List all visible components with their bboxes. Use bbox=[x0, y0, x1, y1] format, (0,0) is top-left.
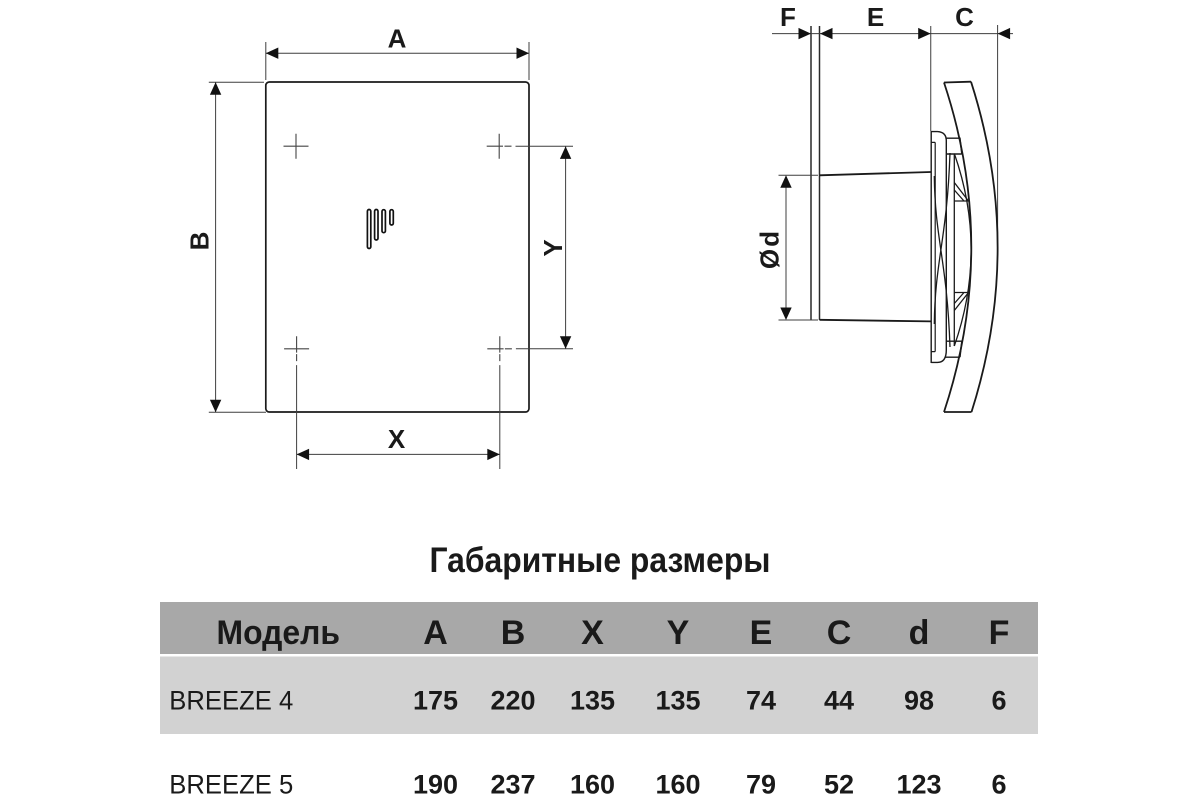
svg-text:74: 74 bbox=[746, 685, 776, 715]
svg-text:A: A bbox=[388, 24, 407, 54]
svg-text:A: A bbox=[423, 614, 448, 652]
svg-text:98: 98 bbox=[904, 685, 934, 715]
svg-text:F: F bbox=[780, 2, 796, 32]
svg-text:52: 52 bbox=[824, 769, 854, 799]
svg-text:B: B bbox=[185, 232, 215, 251]
svg-text:E: E bbox=[867, 2, 884, 32]
svg-text:E: E bbox=[750, 614, 773, 652]
svg-text:190: 190 bbox=[413, 769, 458, 799]
svg-text:C: C bbox=[955, 2, 974, 32]
svg-text:6: 6 bbox=[991, 685, 1006, 715]
svg-text:Y: Y bbox=[667, 614, 690, 652]
svg-text:X: X bbox=[388, 424, 406, 454]
svg-text:BREEZE 4: BREEZE 4 bbox=[169, 685, 293, 715]
svg-text:175: 175 bbox=[413, 685, 458, 715]
svg-text:160: 160 bbox=[655, 769, 700, 799]
svg-text:d: d bbox=[909, 614, 930, 652]
svg-text:6: 6 bbox=[991, 769, 1006, 799]
svg-text:220: 220 bbox=[490, 685, 535, 715]
svg-text:BREEZE 5: BREEZE 5 bbox=[169, 769, 293, 799]
svg-text:160: 160 bbox=[570, 769, 615, 799]
svg-text:135: 135 bbox=[570, 685, 615, 715]
svg-text:B: B bbox=[501, 614, 526, 652]
svg-text:135: 135 bbox=[655, 685, 700, 715]
svg-text:Y: Y bbox=[538, 239, 568, 256]
svg-text:Габаритные размеры: Габаритные размеры bbox=[430, 541, 771, 580]
svg-text:F: F bbox=[989, 614, 1010, 652]
svg-text:237: 237 bbox=[490, 769, 535, 799]
svg-text:X: X bbox=[581, 614, 604, 652]
svg-text:123: 123 bbox=[896, 769, 941, 799]
svg-text:C: C bbox=[827, 614, 852, 652]
svg-text:Модель: Модель bbox=[217, 614, 341, 652]
svg-text:79: 79 bbox=[746, 769, 776, 799]
svg-text:Ød: Ød bbox=[755, 229, 785, 269]
svg-text:44: 44 bbox=[824, 685, 854, 715]
